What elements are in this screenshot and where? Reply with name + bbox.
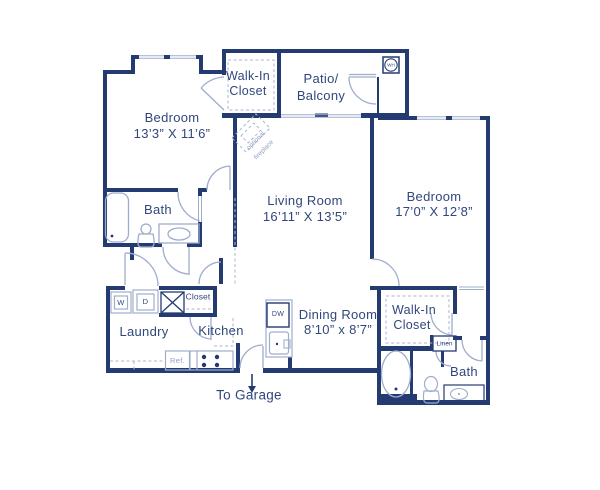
bedroom2-label: Bedroom xyxy=(407,190,462,204)
kitchen-label: Kitchen xyxy=(198,324,243,338)
floor-plan-drawing xyxy=(0,0,600,490)
water-heater-label: WH xyxy=(387,63,395,68)
bath2-label: Bath xyxy=(450,365,478,379)
living-room-dims: 16’11” X 13’5” xyxy=(263,210,347,224)
sink-icon xyxy=(168,228,190,240)
dishwasher-label: DW xyxy=(272,311,284,319)
dining-room-dims: 8’10” x 8’7” xyxy=(304,323,372,337)
dryer-label: D xyxy=(143,298,149,306)
bathtub-icon xyxy=(106,193,129,242)
walkin-closet2-label-line1: Walk-In xyxy=(392,304,436,318)
bedroom2-dims: 17’0” X 12’8” xyxy=(395,205,473,219)
toilet-icon xyxy=(141,224,151,234)
bath1-label: Bath xyxy=(144,203,172,217)
living-room-label: Living Room xyxy=(267,194,343,208)
patio-label-line2: Balcony xyxy=(297,89,345,103)
refrigerator-label: Ref. xyxy=(170,356,185,364)
mechanical-chase-icon xyxy=(161,292,184,313)
bedroom1-label: Bedroom xyxy=(145,111,200,125)
floor-plan: Bedroom 13’3” X 11’6” Walk-In Closet Pat… xyxy=(0,0,600,490)
bedroom1-dims: 13’3” X 11’6” xyxy=(134,127,211,141)
walkin-closet2-label-line2: Closet xyxy=(393,319,430,333)
toilet2-icon xyxy=(425,377,438,392)
to-garage-label: To Garage xyxy=(216,389,282,404)
kitchen-sink-icon xyxy=(270,332,289,354)
patio-label-line1: Patio/ xyxy=(303,72,338,86)
washer-label: W xyxy=(117,298,124,306)
walkin-closet1-label-line1: Walk-In xyxy=(226,70,270,84)
closet-label: Closet xyxy=(186,292,211,301)
laundry-label: Laundry xyxy=(119,325,168,339)
dining-room-label: Dining Room xyxy=(299,308,377,322)
walkin-closet1-label-line2: Closet xyxy=(229,85,266,99)
linen-label: Linen xyxy=(437,340,453,347)
